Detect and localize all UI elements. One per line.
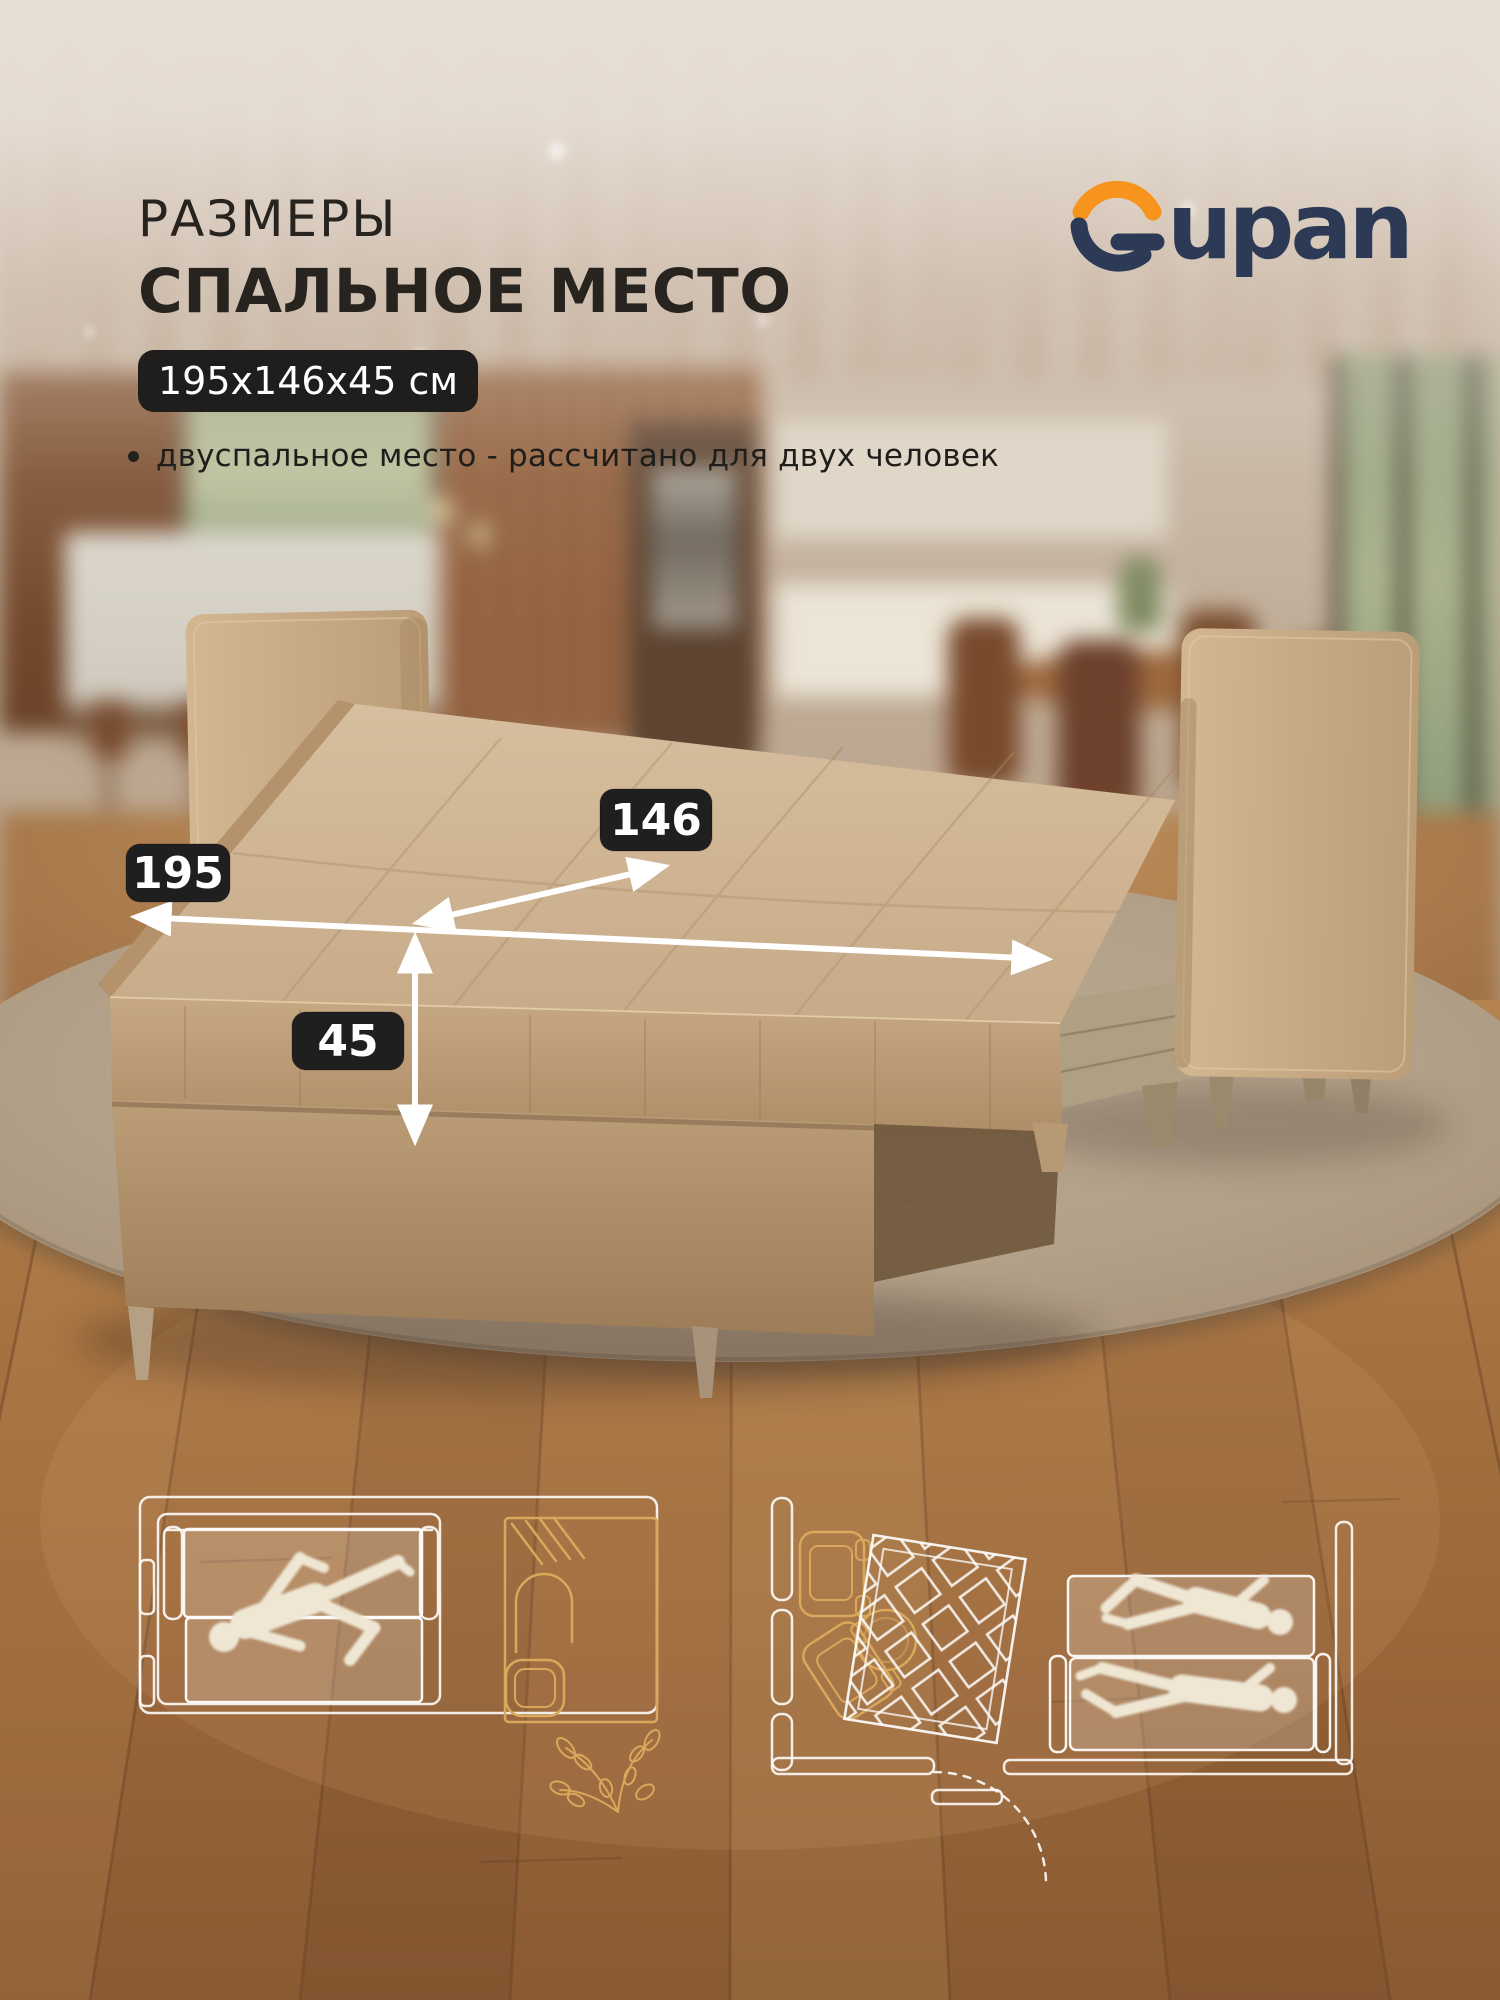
dimension-label-146: 146	[610, 795, 702, 846]
logo-wordmark: upan	[1167, 173, 1410, 280]
logo-g-mark	[1079, 189, 1156, 263]
dimension-badge-195: 195	[126, 844, 230, 902]
page-title-line2: СПАЛЬНОЕ МЕСТО	[138, 256, 792, 327]
page-title-line1: РАЗМЕРЫ	[138, 190, 397, 248]
sofa-right-armrest	[1173, 628, 1420, 1130]
feature-bullet: двуспальное место - рассчитано для двух …	[128, 438, 999, 474]
dimension-label-195: 195	[132, 848, 224, 899]
dimension-badge-146: 146	[600, 789, 712, 851]
brand-logo: upan	[1055, 158, 1435, 288]
plan-lattice-rug	[844, 1535, 1025, 1743]
dimension-label-45: 45	[317, 1016, 378, 1067]
product-infographic: 195 146 45	[0, 0, 1500, 2000]
dimension-badge-45: 45	[292, 1012, 404, 1070]
dimensions-badge: 195x146x45 см	[138, 350, 478, 412]
bullet-dot	[128, 451, 139, 462]
bullet-text: двуспальное место - рассчитано для двух …	[156, 438, 999, 474]
